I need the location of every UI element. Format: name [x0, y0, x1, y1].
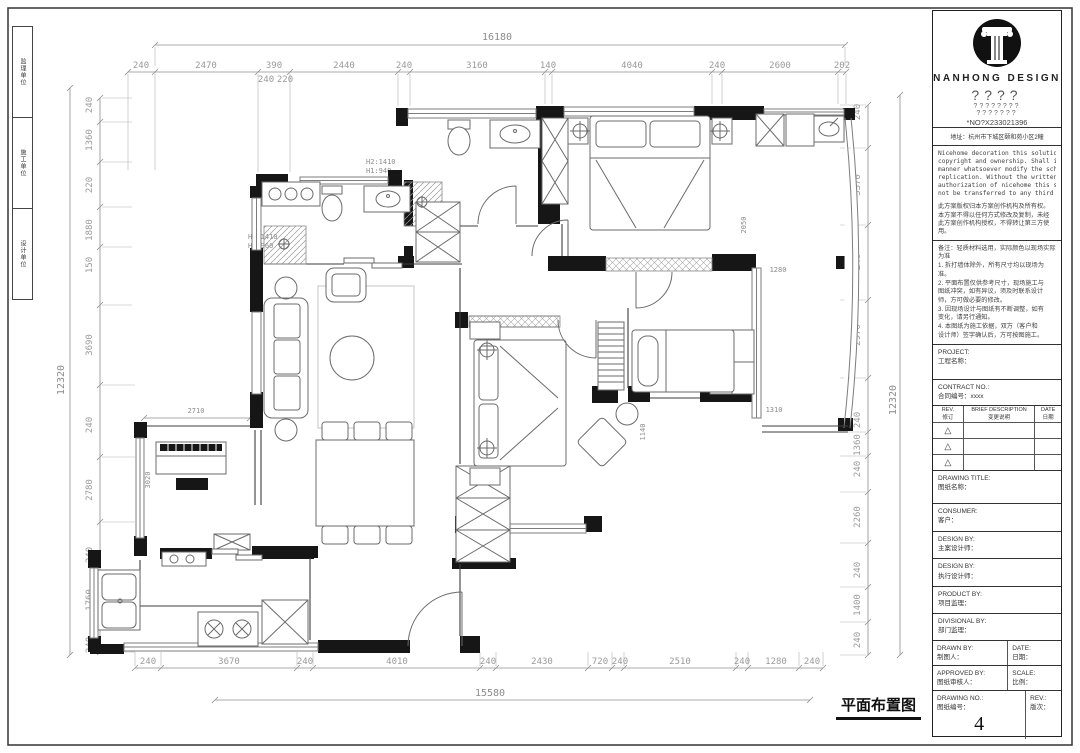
dim-top-10: 202: [834, 61, 850, 71]
desc-col-header: BRIEF DESCRIPTION 变更说明: [964, 406, 1036, 422]
dim-top-3: 2440: [333, 61, 355, 71]
tagline-2: ????????: [973, 103, 1020, 110]
tagline-3: ???????: [976, 110, 1017, 117]
rev-header-cn: 修订: [933, 413, 963, 421]
master-bedroom-furniture: [568, 116, 732, 230]
dim-bot-4: 240: [480, 657, 496, 667]
strip-label-1: 监理单位: [18, 58, 27, 86]
disclaimer-en-line: authorization of nicehome this scheme ma…: [938, 182, 1056, 190]
tagline-1: ????: [971, 87, 1022, 103]
note-line: 备注：轻质材料选用，实际颜色以现场实际为准: [938, 245, 1056, 262]
bedroom3-furniture: [632, 330, 734, 392]
dim-top-sub-1: 220: [277, 75, 293, 85]
dim-right-10: 240: [853, 632, 863, 648]
drawing-title-label-en: DRAWING TITLE:: [938, 474, 1056, 483]
desc-header-cn: 变更说明: [964, 413, 1035, 421]
note-line: 图纸冲突，如有异议，须及时联系设计: [938, 288, 1056, 297]
product-label-cn: 项目监理：: [938, 599, 1056, 608]
contract-label: CONTRACT NO.:: [938, 383, 1056, 392]
dim-top-1: 2470: [195, 61, 217, 71]
note-line: 1. 拆打墙体除外，所有尺寸均以现场为准。: [938, 262, 1056, 279]
date-label-cn: 日期：: [1012, 653, 1057, 662]
revision-triangle-icon: △: [933, 442, 963, 451]
drawing-sheet: 16180 240 2470 390 2440 240 3160 140 404…: [0, 0, 1080, 753]
strip-cell-2: 施工单位: [13, 118, 32, 209]
disclaimer-en-line: copyright and ownership. Shall in no: [938, 158, 1056, 166]
field-design2: DESIGN BY: 执行设计师：: [933, 558, 1061, 586]
dim-right-6: 240: [853, 461, 863, 477]
revision-header-row: REV. 修订 BRIEF DESCRIPTION 变更说明 DATE 日期: [933, 406, 1061, 423]
revision-row: △: [933, 439, 1061, 455]
dim-top-0: 240: [133, 61, 149, 71]
dim-top-7: 4040: [621, 61, 643, 71]
dim-right-7: 2260: [853, 506, 863, 528]
disclaimer-cn-line: 本方案不得以任何方式修改及复制，未经: [938, 212, 1056, 220]
page-number: 4: [937, 713, 1021, 736]
dim-left-2: 220: [85, 177, 95, 193]
revision-triangle-icon: △: [933, 458, 963, 467]
dim-bot-8: 2510: [669, 657, 691, 667]
dim-left-5: 3690: [85, 334, 95, 356]
field-drawing-no: DRAWING NO.: 图纸编号： 4 REV.: 版次：: [933, 690, 1061, 736]
drawn-label: DRAWN BY:: [937, 644, 1003, 653]
revision-triangle-icon: △: [933, 426, 963, 435]
dim-interior-1140: 1140: [639, 424, 647, 441]
revision-row: △: [933, 423, 1061, 439]
drawing-no-label-cn: 图纸编号：: [937, 703, 1021, 712]
disclaimer-cn-line: 此方案创作机构授权，不得转让第三方使用。: [938, 220, 1056, 237]
field-contract: CONTRACT NO.: 合同编号：xxxx: [933, 379, 1061, 405]
note-line: 设计师）签字确认后，方可按图施工。: [938, 332, 1056, 341]
signature-strip: 监理单位 施工单位 设计单位: [12, 26, 33, 300]
annotation-bath-top-h1: H1:940: [366, 167, 391, 175]
date-label: DATE:: [1012, 644, 1057, 653]
dim-right-9: 1400: [853, 594, 863, 616]
field-approved-scale: APPROVED BY: 图纸审核人： SCALE: 比例：: [933, 665, 1061, 690]
dim-top-2: 390: [266, 61, 282, 71]
dim-bot-5: 2430: [531, 657, 553, 667]
note-line: 2. 平面布置仅供参考尺寸，现场施工与: [938, 280, 1056, 289]
company-logo-icon: [970, 17, 1024, 71]
rev-col-header: REV. 修订: [933, 406, 964, 422]
dim-left-7: 2780: [85, 479, 95, 501]
dim-bot-7: 240: [612, 657, 628, 667]
company-address: 地址：杭州市下城区颐和苑小区2幢: [933, 127, 1061, 145]
dim-bot-0: 240: [140, 657, 156, 667]
field-consumer: CONSUMER: 客户：: [933, 503, 1061, 532]
dim-left-1: 1360: [85, 129, 95, 151]
disclaimer-en: Nicehome decoration this solution has th…: [933, 145, 1061, 200]
company-number: *NO?X233021396: [967, 118, 1028, 127]
date-col-header: DATE 日期: [1035, 406, 1061, 422]
dim-top-total: 16180: [482, 32, 512, 43]
design1-label-cn: 主案设计师：: [938, 544, 1056, 553]
dim-right-5: 1360: [853, 434, 863, 456]
drawing-no-label: DRAWING NO.:: [937, 694, 1021, 703]
drawing-title-label: 平面布置图: [836, 694, 921, 720]
design1-label: DESIGN BY:: [938, 535, 1056, 544]
dim-bottom-total: 15580: [475, 688, 505, 699]
disclaimer-en-line: not be transferred to any third party.: [938, 190, 1056, 198]
disclaimer-cn: 此方案版权归本方案创作机构及所有权。 本方案不得以任何方式修改及复制，未经 此方…: [933, 200, 1061, 239]
divisional-label-cn: 部门监理：: [938, 626, 1056, 635]
design2-label-cn: 执行设计师：: [938, 572, 1056, 581]
dim-left-3: 1880: [85, 219, 95, 241]
note-line: 变化，请另行通知。: [938, 314, 1056, 323]
dim-interior-2050: 2050: [740, 217, 748, 234]
dim-top-5: 3160: [466, 61, 488, 71]
dim-bot-3: 4010: [386, 657, 408, 667]
notes-section: 备注：轻质材料选用，实际颜色以现场实际为准 1. 拆打墙体除外，所有尺寸均以现场…: [933, 240, 1061, 344]
disclaimer-en-line: replication. Without the written: [938, 174, 1056, 182]
dim-left-total: 12320: [56, 365, 67, 395]
field-design1: DESIGN BY: 主案设计师：: [933, 531, 1061, 558]
floor-plan-canvas: 16180 240 2470 390 2440 240 3160 140 404…: [0, 0, 1080, 753]
field-product: PRODUCT BY: 项目监理：: [933, 586, 1061, 613]
dim-bot-6: 720: [592, 657, 608, 667]
revision-table: REV. 修订 BRIEF DESCRIPTION 变更说明 DATE 日期 △…: [933, 405, 1061, 470]
consumer-label: CONSUMER:: [938, 507, 1056, 516]
dim-top-4: 240: [396, 61, 412, 71]
disclaimer-en-line: manner whatsoever modify the scheme and: [938, 166, 1056, 174]
field-drawn-date: DRAWN BY: 制图人： DATE: 日期：: [933, 640, 1061, 665]
dim-right-8: 240: [853, 562, 863, 578]
dim-right-4: 240: [853, 412, 863, 428]
design2-label: DESIGN BY:: [938, 562, 1056, 571]
dim-bot-11: 240: [804, 657, 820, 667]
kitchen-fixtures: [98, 552, 258, 646]
rev-label-cn: 版次：: [1030, 703, 1057, 712]
annotation-bath-top-h2: H2:1410: [366, 158, 396, 166]
product-label: PRODUCT BY:: [938, 590, 1056, 599]
field-project: PROJECT: 工程名称：: [933, 344, 1061, 379]
note-line: 师，方可做必要的修改。: [938, 297, 1056, 306]
dim-interior-3020: 3020: [144, 472, 152, 489]
drawn-label-cn: 制图人：: [937, 653, 1003, 662]
disclaimer-cn-line: 此方案版权归本方案创作机构及所有权。: [938, 203, 1056, 211]
dim-right-total: 12320: [888, 385, 899, 415]
dim-top-6: 140: [540, 61, 556, 71]
logo-section: NANHONG DESIGN ???? ???????? ??????? *NO…: [933, 11, 1061, 127]
revision-row: △: [933, 455, 1061, 470]
strip-cell-1: 监理单位: [13, 27, 32, 118]
strip-cell-3: 设计单位: [13, 209, 32, 299]
field-divisional: DIVISIONAL BY: 部门监理：: [933, 613, 1061, 639]
strip-label-3: 设计单位: [18, 240, 27, 268]
title-block: NANHONG DESIGN ???? ???????? ??????? *NO…: [932, 10, 1062, 737]
dim-left-6: 240: [85, 417, 95, 433]
dim-bot-10: 1280: [765, 657, 787, 667]
dim-interior-1280: 1280: [770, 266, 787, 274]
scale-label-cn: 比例：: [1012, 678, 1057, 687]
date-header-cn: 日期: [1035, 413, 1061, 421]
dim-top-9: 2600: [769, 61, 791, 71]
drawing-title-label-cn: 图纸名称：: [938, 483, 1056, 492]
company-name: NANHONG DESIGN: [933, 73, 1061, 84]
dim-bot-9: 240: [734, 657, 750, 667]
project-label-cn: 工程名称：: [938, 357, 1056, 366]
consumer-label-cn: 客户：: [938, 516, 1056, 525]
approved-label: APPROVED BY:: [937, 669, 1003, 678]
disclaimer-en-line: Nicehome decoration this solution has th…: [938, 150, 1056, 158]
dim-left-0: 240: [85, 97, 95, 113]
project-label: PROJECT:: [938, 348, 1056, 357]
dim-left-4: 150: [85, 257, 95, 273]
piano-room-furniture: [156, 442, 226, 490]
dim-bot-1: 3670: [218, 657, 240, 667]
field-drawing-title: DRAWING TITLE: 图纸名称：: [933, 470, 1061, 503]
strip-label-2: 施工单位: [18, 149, 27, 177]
dim-top-sub-0: 240: [258, 75, 274, 85]
dim-top-8: 240: [709, 61, 725, 71]
note-line: 4. 本图纸为施工依据，双方（客户和: [938, 323, 1056, 332]
rev-label: REV.:: [1030, 694, 1057, 703]
contract-label-cn: 合同编号：xxxx: [938, 392, 1056, 401]
dim-interior-2710: 2710: [188, 407, 205, 415]
living-dining-furniture: [264, 268, 414, 544]
note-line: 3. 因现场设计与图纸有不断调整，如有: [938, 306, 1056, 315]
scale-label: SCALE:: [1012, 669, 1057, 678]
divisional-label: DIVISIONAL BY:: [938, 617, 1056, 626]
dim-interior-1310: 1310: [766, 406, 783, 414]
dim-bot-2: 240: [297, 657, 313, 667]
approved-label-cn: 图纸审核人：: [937, 678, 1003, 687]
